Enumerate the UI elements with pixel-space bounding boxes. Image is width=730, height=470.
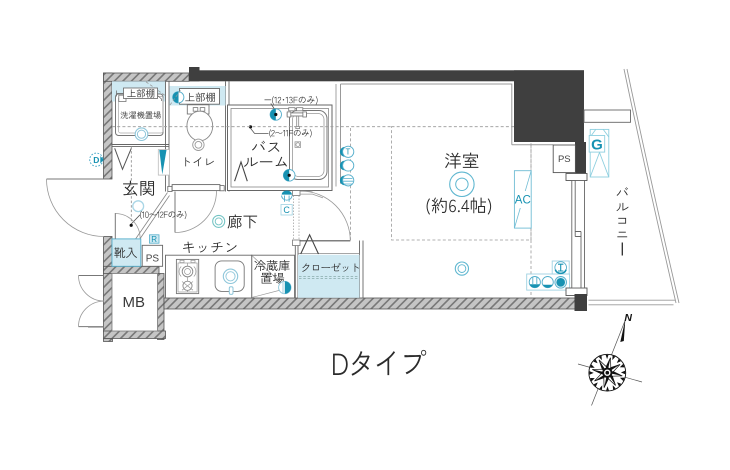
svg-text:PS: PS bbox=[146, 253, 160, 264]
svg-text:G: G bbox=[591, 136, 603, 153]
svg-text:MB: MB bbox=[123, 294, 146, 311]
svg-text:R: R bbox=[151, 235, 157, 244]
svg-text:T: T bbox=[346, 148, 351, 157]
svg-text:AC: AC bbox=[515, 194, 531, 206]
svg-text:C: C bbox=[283, 205, 290, 215]
svg-text:N: N bbox=[624, 312, 632, 324]
svg-text:D: D bbox=[93, 155, 99, 165]
svg-text:PS: PS bbox=[558, 154, 571, 165]
